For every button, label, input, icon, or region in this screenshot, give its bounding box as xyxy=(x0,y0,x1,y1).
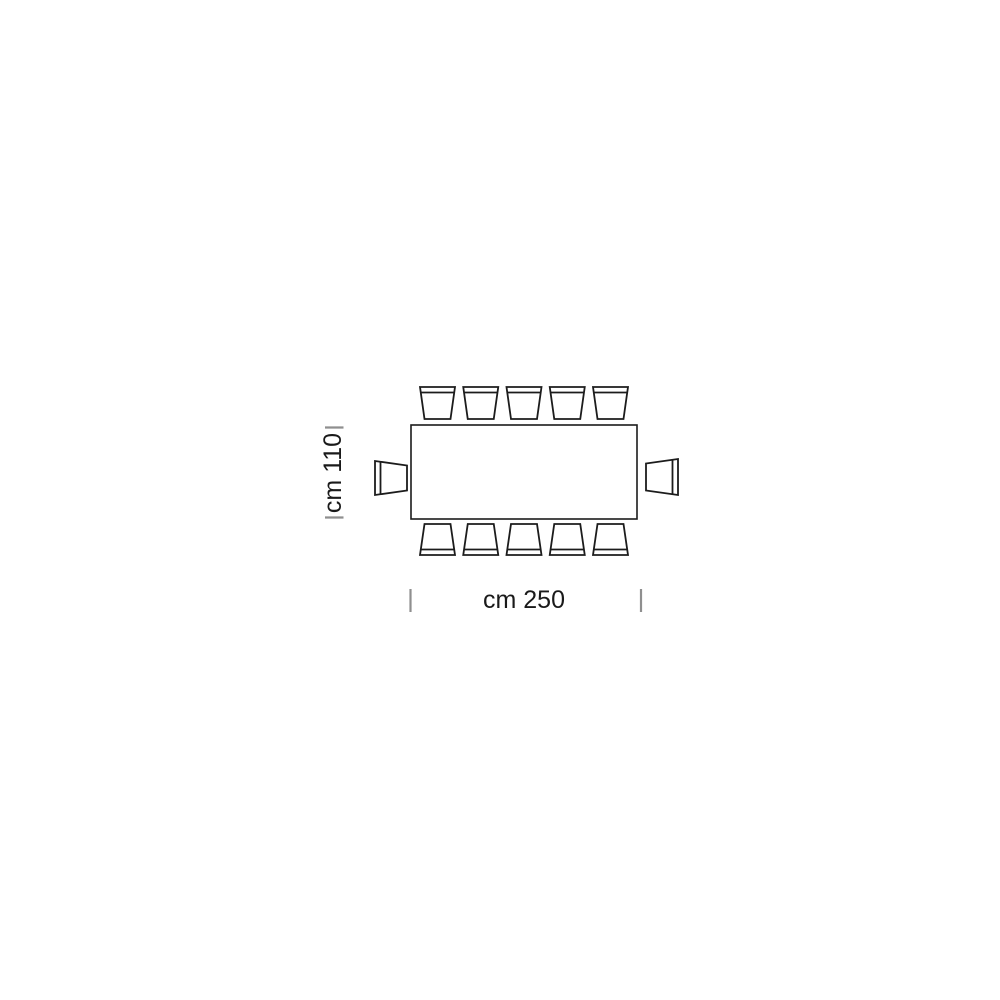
chair-top-3 xyxy=(507,387,542,419)
width-dimension: cm 250 xyxy=(411,586,642,614)
plan-svg: cm 110 cm 250 xyxy=(0,0,1000,1000)
chair-bottom-4 xyxy=(550,524,585,555)
chair-bottom-1 xyxy=(420,524,455,555)
chair-left-1 xyxy=(375,461,407,495)
chair-row-bottom xyxy=(420,524,628,555)
chair-bottom-2 xyxy=(463,524,498,555)
chair-top-2 xyxy=(463,387,498,419)
chair-top-1 xyxy=(420,387,455,419)
chair-right-1 xyxy=(646,459,678,495)
chair-bottom-5 xyxy=(593,524,628,555)
chair-top-4 xyxy=(550,387,585,419)
chair-row-top xyxy=(420,387,628,419)
chair-end-left xyxy=(375,461,407,495)
table-top xyxy=(411,425,637,519)
chair-bottom-3 xyxy=(507,524,542,555)
width-label: cm 250 xyxy=(483,586,565,614)
chair-top-5 xyxy=(593,387,628,419)
depth-dimension: cm 110 xyxy=(319,428,347,518)
furniture-plan: cm 110 cm 250 xyxy=(0,0,1000,1000)
depth-label: cm 110 xyxy=(319,433,347,513)
chair-end-right xyxy=(646,459,678,495)
